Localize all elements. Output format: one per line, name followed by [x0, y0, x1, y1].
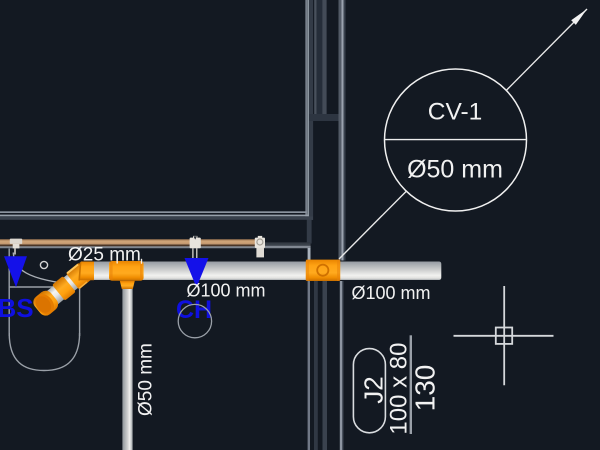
svg-text:CV-1: CV-1 [428, 99, 482, 126]
svg-text:Ø50 mm: Ø50 mm [136, 343, 157, 416]
svg-text:BS: BS [0, 293, 34, 323]
svg-text:Ø25 mm: Ø25 mm [68, 245, 141, 266]
svg-text:130: 130 [410, 365, 441, 412]
svg-text:Ø50 mm: Ø50 mm [407, 156, 503, 184]
svg-text:J2: J2 [359, 376, 389, 403]
svg-text:Ø100 mm: Ø100 mm [352, 283, 431, 303]
svg-text:100 x 80: 100 x 80 [386, 343, 413, 435]
